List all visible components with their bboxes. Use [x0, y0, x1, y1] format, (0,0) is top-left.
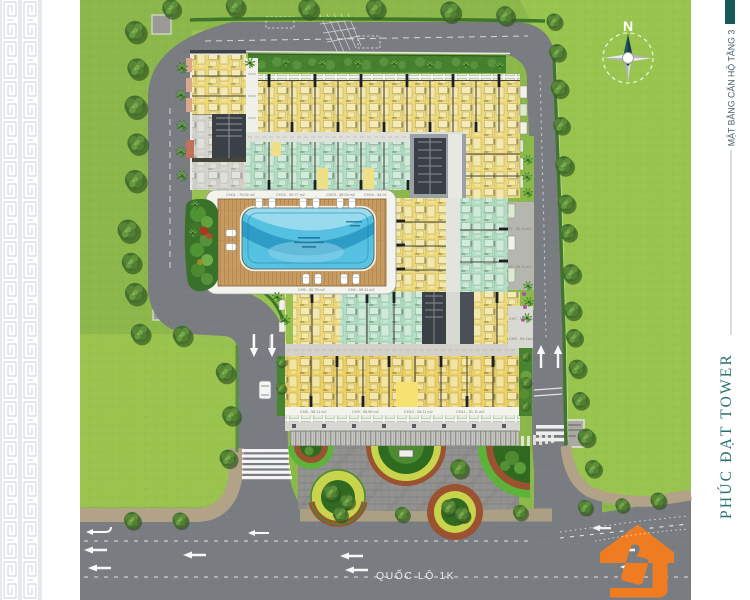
- svg-text:CH01 - 79.02 m2: CH01 - 79.02 m2: [226, 193, 255, 197]
- svg-text:MẬT BẰNG CĂN HỘ TẦNG 3: MẬT BẰNG CĂN HỘ TẦNG 3: [727, 30, 737, 147]
- svg-text:N: N: [623, 18, 633, 34]
- svg-text:CH9 - 59.11m2: CH9 - 59.11m2: [509, 337, 534, 341]
- svg-text:CH04 - 64.01: CH04 - 64.01: [364, 193, 387, 197]
- svg-text:CH02 - 59.77 m2: CH02 - 59.77 m2: [276, 193, 305, 197]
- svg-text:CH8 - 58.11 m2: CH8 - 58.11 m2: [300, 410, 327, 414]
- svg-text:CH7 - 59.11 m2: CH7 - 59.11 m2: [505, 227, 532, 231]
- svg-text:CH03 - 58.03 m2: CH03 - 58.03 m2: [326, 193, 355, 197]
- svg-text:CH5 - 50.75 m2: CH5 - 50.75 m2: [298, 288, 325, 292]
- svg-text:CH11 - 51.11 m2: CH11 - 51.11 m2: [456, 410, 484, 414]
- svg-text:CH6 - 59.11 m2: CH6 - 59.11 m2: [348, 288, 375, 292]
- svg-text:CH10 - 58.11 m2: CH10 - 58.11 m2: [404, 410, 433, 414]
- svg-text:QUỐC LỘ 1K: QUỐC LỘ 1K: [376, 568, 455, 582]
- svg-text:CH9 - 58.65 m2: CH9 - 58.65 m2: [352, 410, 379, 414]
- svg-text:PHÚC ĐẠT TOWER: PHÚC ĐẠT TOWER: [718, 353, 735, 519]
